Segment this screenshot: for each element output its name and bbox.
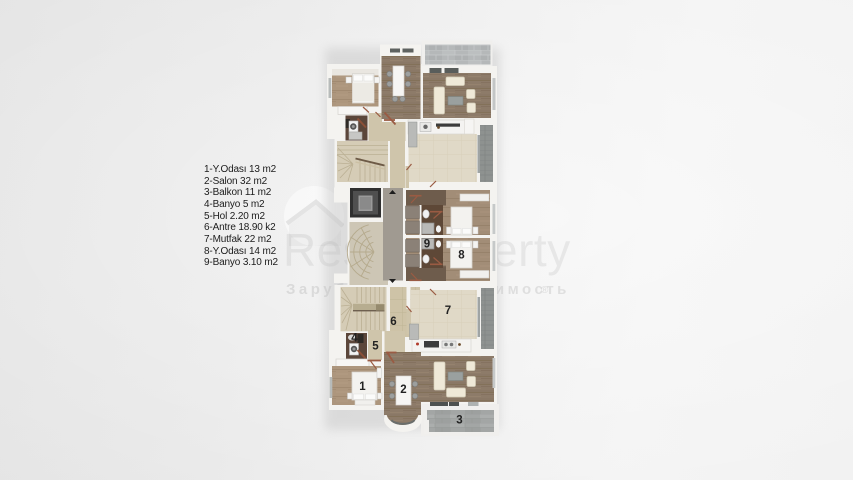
svg-text:9: 9 xyxy=(424,239,430,251)
svg-text:6: 6 xyxy=(390,316,396,328)
svg-text:8: 8 xyxy=(458,250,465,262)
svg-text:1: 1 xyxy=(359,381,366,393)
svg-text:5: 5 xyxy=(372,341,379,353)
svg-text:4: 4 xyxy=(351,333,358,345)
svg-text:3: 3 xyxy=(456,415,462,427)
svg-text:7: 7 xyxy=(445,305,451,317)
svg-text:2: 2 xyxy=(400,384,406,396)
